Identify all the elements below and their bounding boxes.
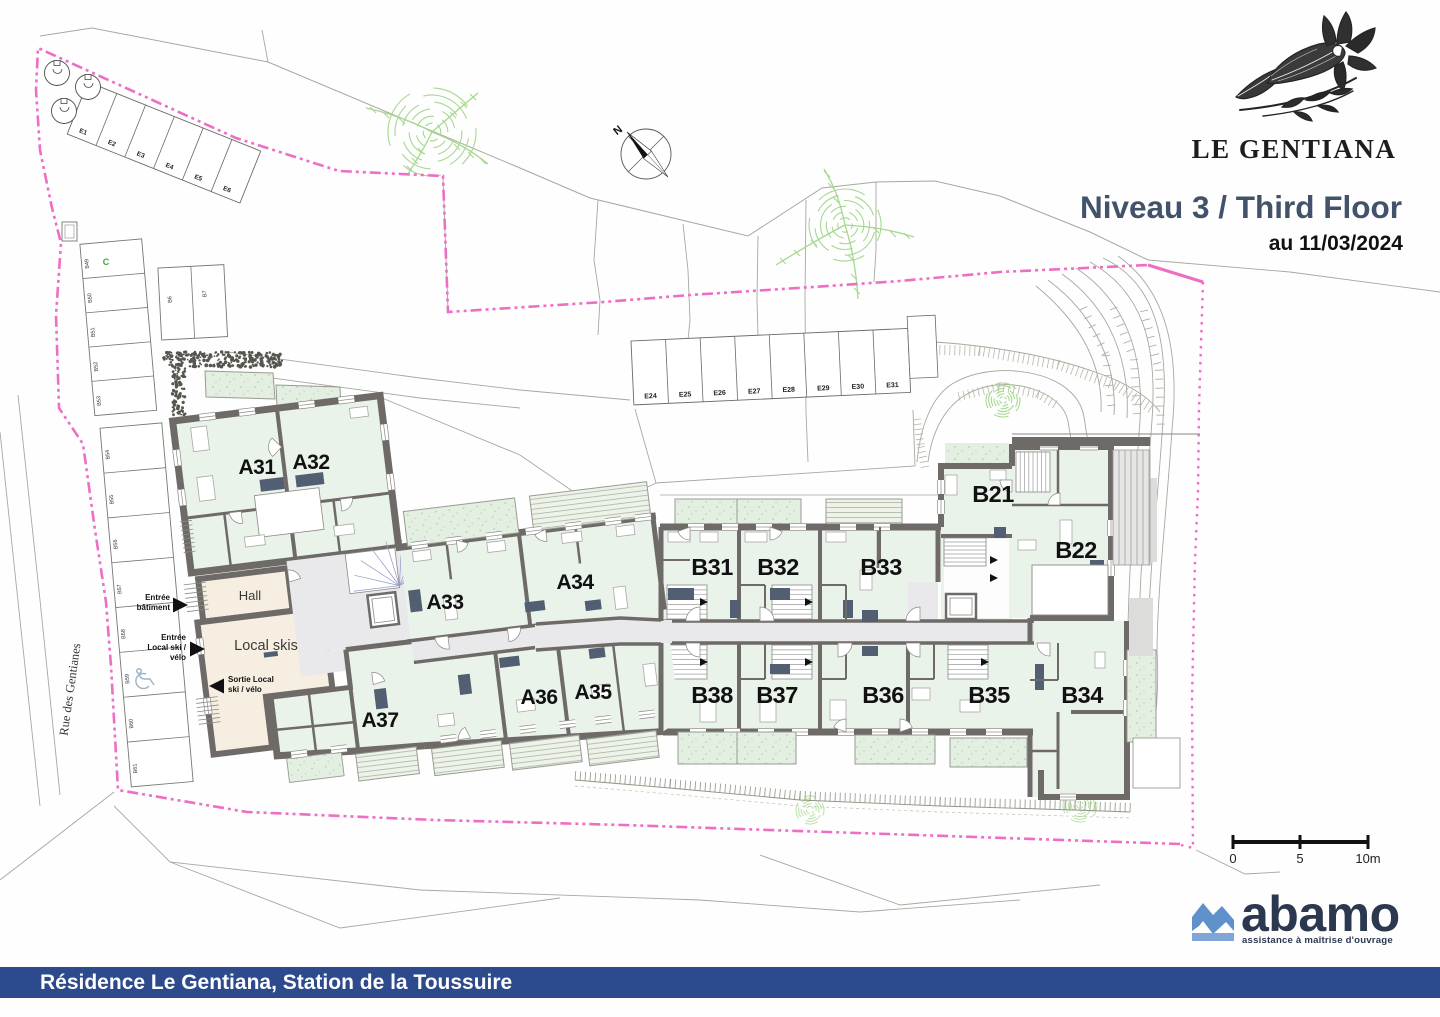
svg-text:E26: E26 (713, 390, 726, 398)
svg-text:bâtiment: bâtiment (137, 603, 171, 612)
svg-text:B60: B60 (128, 718, 135, 728)
svg-text:Résidence Le Gentiana, Station: Résidence Le Gentiana, Station de la Tou… (40, 971, 512, 994)
svg-text:B38: B38 (691, 682, 733, 708)
svg-text:abamo: abamo (1241, 886, 1400, 942)
svg-text:E24: E24 (644, 393, 657, 401)
svg-text:B21: B21 (972, 481, 1014, 507)
svg-text:Hall: Hall (239, 588, 262, 603)
svg-text:A37: A37 (361, 709, 398, 732)
svg-text:B33: B33 (860, 554, 902, 580)
svg-text:B54: B54 (105, 449, 112, 459)
svg-text:vélo: vélo (170, 653, 186, 662)
svg-text:B37: B37 (756, 682, 798, 708)
svg-text:E27: E27 (748, 388, 761, 396)
svg-text:B35: B35 (968, 682, 1010, 708)
svg-text:Local skis: Local skis (234, 638, 298, 654)
svg-text:au 11/03/2024: au 11/03/2024 (1269, 232, 1404, 255)
svg-text:5: 5 (1296, 851, 1303, 866)
svg-text:Entrée: Entrée (161, 633, 186, 642)
svg-text:B53: B53 (96, 396, 103, 406)
svg-text:LE GENTIANA: LE GENTIANA (1192, 134, 1397, 164)
svg-text:A31: A31 (238, 456, 276, 479)
svg-text:10m: 10m (1355, 851, 1380, 866)
svg-text:B52: B52 (93, 361, 100, 371)
svg-text:E30: E30 (852, 383, 865, 391)
svg-text:B22: B22 (1055, 537, 1097, 563)
svg-text:B55: B55 (109, 494, 116, 504)
svg-text:ski / vélo: ski / vélo (228, 685, 262, 694)
svg-text:B61: B61 (132, 763, 139, 773)
svg-text:B51: B51 (90, 327, 97, 337)
svg-text:A33: A33 (426, 591, 463, 614)
svg-text:B32: B32 (757, 554, 799, 580)
svg-text:E31: E31 (886, 382, 899, 390)
svg-text:E29: E29 (817, 385, 830, 393)
svg-text:0: 0 (1229, 851, 1236, 866)
svg-text:B56: B56 (113, 539, 120, 549)
svg-text:B34: B34 (1061, 682, 1103, 708)
svg-text:E25: E25 (679, 391, 692, 399)
svg-text:B49: B49 (84, 259, 91, 269)
svg-text:B58: B58 (121, 629, 128, 639)
svg-text:E28: E28 (782, 387, 795, 395)
svg-text:C: C (103, 257, 110, 267)
svg-text:assistance à maîtrise d'ouvrag: assistance à maîtrise d'ouvrage (1242, 935, 1393, 946)
svg-text:Niveau 3 / Third Floor: Niveau 3 / Third Floor (1080, 189, 1402, 225)
svg-text:A32: A32 (292, 451, 329, 474)
svg-text:A34: A34 (556, 571, 594, 594)
svg-text:B59: B59 (125, 674, 132, 684)
svg-text:Sortie Local: Sortie Local (228, 675, 274, 684)
svg-text:A35: A35 (574, 681, 612, 704)
svg-text:B6: B6 (167, 296, 173, 303)
svg-text:B7: B7 (202, 290, 208, 297)
svg-text:A36: A36 (520, 686, 557, 709)
svg-text:B50: B50 (87, 293, 94, 303)
svg-text:Local ski /: Local ski / (147, 643, 186, 652)
svg-text:B31: B31 (691, 554, 733, 580)
svg-text:Entrée: Entrée (145, 593, 170, 602)
svg-text:B36: B36 (862, 682, 904, 708)
svg-text:B57: B57 (117, 584, 124, 594)
